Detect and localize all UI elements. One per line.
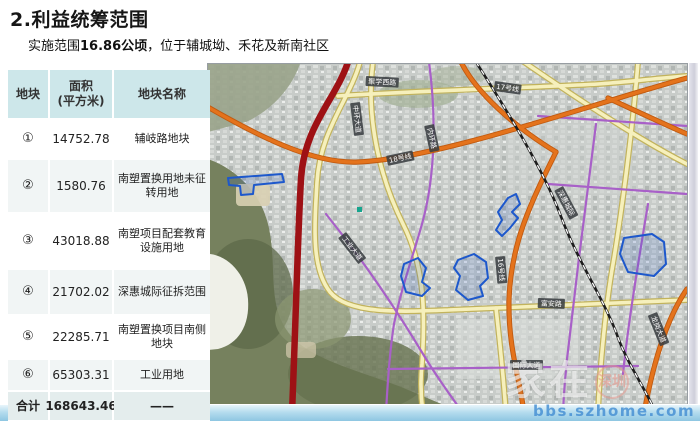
plot-name: 南塑项目配套教育设施用地 xyxy=(114,214,210,268)
plot-name: 工业用地 xyxy=(114,360,210,390)
table-header-row: 地块 面积 (平方米) 地块名称 xyxy=(8,70,210,118)
total-area: 168643.46 xyxy=(50,392,112,420)
table-row: ⑤ 22285.71 南塑置换项目南侧地块 xyxy=(8,316,210,358)
plot-area: 1580.76 xyxy=(50,160,112,212)
plot-id: ② xyxy=(8,160,48,212)
plot-name: 辅岐路地块 xyxy=(114,120,210,158)
plots-table: 地块 面积 (平方米) 地块名称 ① 14752.78 辅岐路地块 ② 1580… xyxy=(8,70,210,422)
subtitle-suffix: ，位于辅城坳、禾花及新南社区 xyxy=(147,39,329,54)
total-name: —— xyxy=(114,392,210,420)
plot-id: ① xyxy=(8,120,48,158)
plot-area: 43018.88 xyxy=(50,214,112,268)
svg-text:富安路: 富安路 xyxy=(541,299,562,309)
subtitle-area-value: 16.86公顷 xyxy=(80,39,147,54)
table-row: ① 14752.78 辅岐路地块 xyxy=(8,120,210,158)
plot-id: ⑥ xyxy=(8,360,48,390)
svg-text:聚学西路: 聚学西路 xyxy=(368,77,396,87)
table-row: ③ 43018.88 南塑项目配套教育设施用地 xyxy=(8,214,210,268)
plot-area: 65303.31 xyxy=(50,360,112,390)
total-label: 合计 xyxy=(8,392,48,420)
plot-boundary-5 xyxy=(620,234,666,276)
watermark: 家在深圳 bbs.szhome.com xyxy=(505,348,700,420)
table-row: ② 1580.76 南塑置换用地未征转用地 xyxy=(8,160,210,212)
road-label: 聚学西路 xyxy=(365,76,398,88)
header-plot: 地块 xyxy=(8,70,48,118)
table-total-row: 合计 168643.46 —— xyxy=(8,392,210,420)
plot-area: 21702.02 xyxy=(50,270,112,314)
subtitle-prefix: 实施范围 xyxy=(28,39,80,54)
plot-id: ③ xyxy=(8,214,48,268)
plot-id: ④ xyxy=(8,270,48,314)
plot-area: 14752.78 xyxy=(50,120,112,158)
map-sand-patch xyxy=(286,342,316,358)
header-name: 地块名称 xyxy=(114,70,210,118)
header-area: 面积 (平方米) xyxy=(50,70,112,118)
table-row: ⑥ 65303.31 工业用地 xyxy=(8,360,210,390)
watermark-brand: 家在 xyxy=(505,358,593,404)
plot-id: ⑤ xyxy=(8,316,48,358)
watermark-badge: 深圳 xyxy=(595,365,629,399)
plot-name: 南塑置换用地未征转用地 xyxy=(114,160,210,212)
watermark-site-url: bbs.szhome.com xyxy=(533,402,700,420)
plot-name: 深惠城际征拆范围 xyxy=(114,270,210,314)
plot-boundary-3 xyxy=(454,254,488,300)
poi-marker xyxy=(357,207,362,212)
page-title: 2.利益统筹范围 xyxy=(10,5,148,32)
plot-name: 南塑置换项目南侧地块 xyxy=(114,316,210,358)
road-label: 富安路 xyxy=(538,298,565,309)
subtitle: 实施范围16.86公顷，位于辅城坳、禾花及新南社区 xyxy=(28,35,329,54)
plot-area: 22285.71 xyxy=(50,316,112,358)
table-row: ④ 21702.02 深惠城际征拆范围 xyxy=(8,270,210,314)
